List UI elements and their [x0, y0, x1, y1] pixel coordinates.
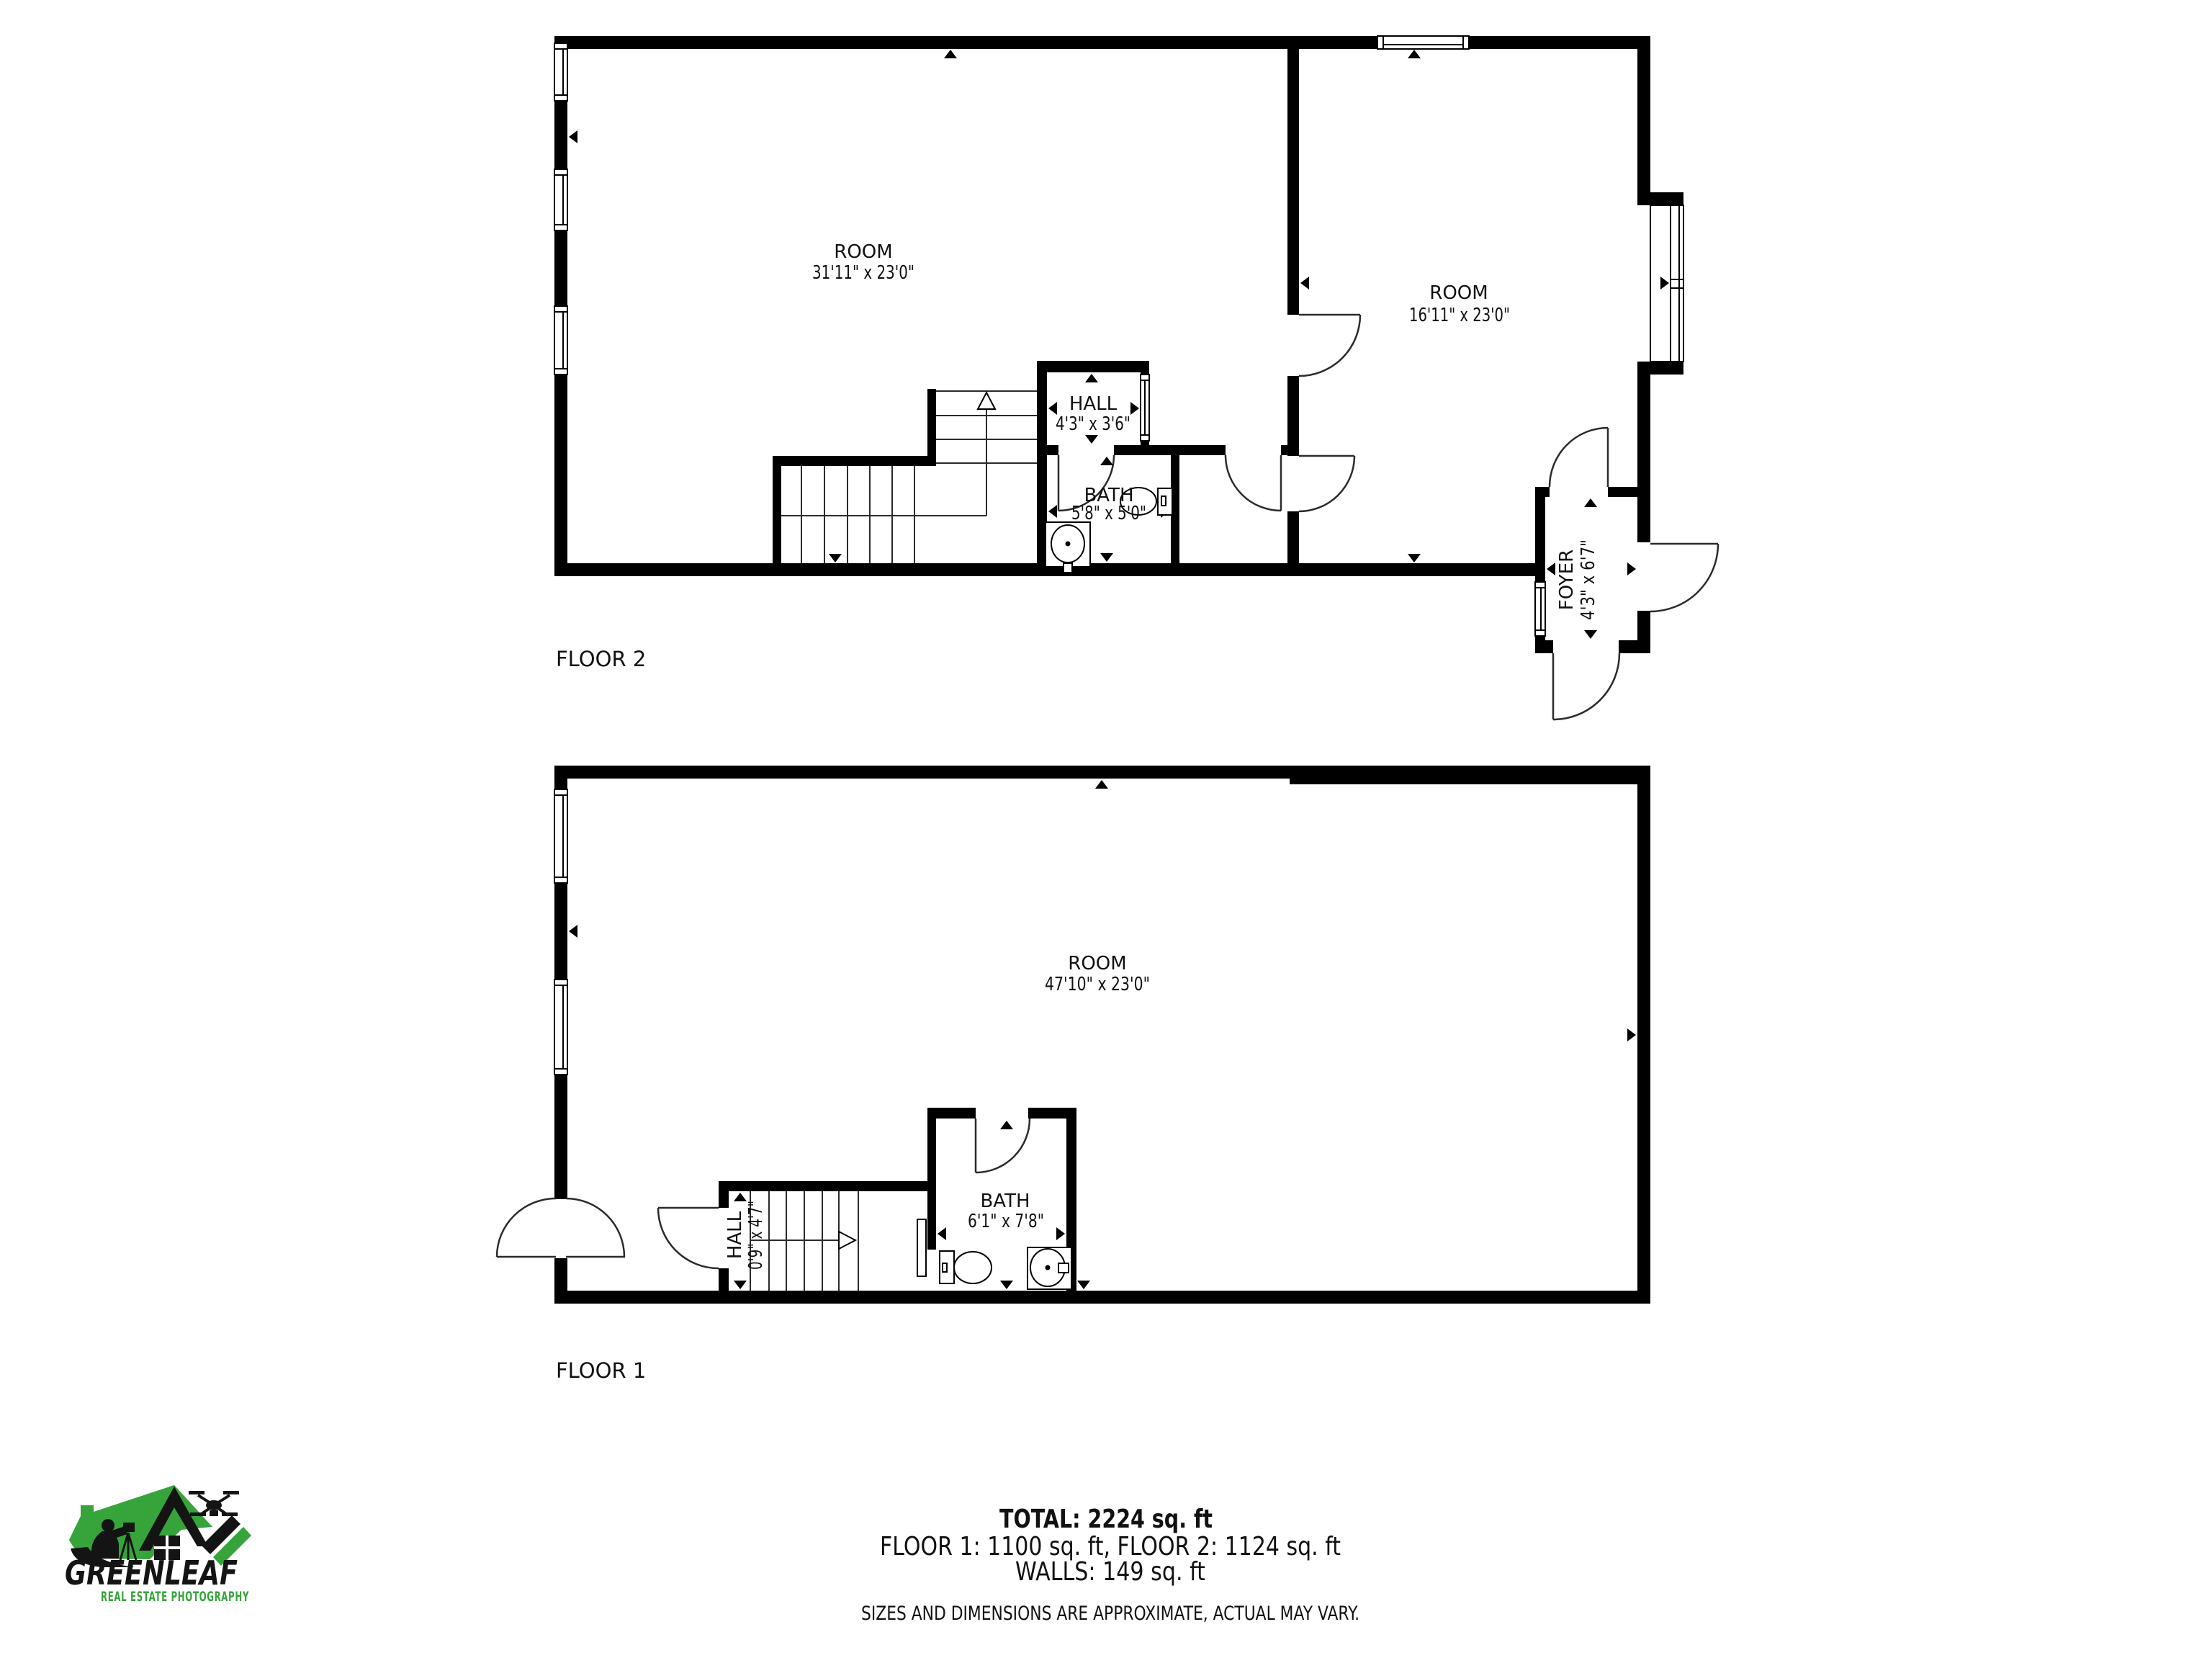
wall-segment	[1637, 192, 1683, 205]
dimension-arrow-icon	[1584, 630, 1597, 639]
dimension-arrow-icon	[1077, 1281, 1090, 1289]
floor2-room-left-dims: 31'11" x 23'0"	[812, 262, 914, 284]
door-swing-arc	[1650, 544, 1718, 611]
dimension-arrow-icon	[1627, 1028, 1636, 1041]
floor2-foyer-dims: 4'3" x 6'7"	[1578, 539, 1599, 620]
window-icon	[554, 789, 567, 883]
floor2-foyer-name: FOYER	[1556, 550, 1578, 610]
wall-segment	[1619, 640, 1650, 653]
dimension-arrow-icon	[734, 1281, 747, 1289]
window-icon	[554, 306, 567, 375]
floor1-hall-name: HALL	[724, 1211, 746, 1259]
floorplan-drawing: ROOM 31'11" x 23'0" ROOM 16'11" x 23'0" …	[0, 0, 2212, 1659]
wall-segment	[1637, 36, 1650, 192]
sink-faucet	[1064, 563, 1072, 573]
summary-walls: WALLS: 149 sq. ft	[1015, 1557, 1205, 1587]
wall-segment	[554, 1075, 567, 1199]
floor1-labels: ROOM 47'10" x 23'0" BATH 6'1" x 7'8" HAL…	[556, 953, 1150, 1383]
wall-segment	[554, 766, 1290, 779]
dimension-arrow-icon	[1100, 553, 1113, 562]
dimension-arrow-icon	[1000, 1121, 1013, 1129]
floor1-bath-dims: 6'1" x 7'8"	[968, 1211, 1044, 1232]
dimension-arrow-icon	[1627, 562, 1636, 575]
door-swing-arc	[658, 1208, 719, 1268]
wall-segment	[1535, 487, 1545, 582]
dimension-arrow-icon	[1085, 374, 1098, 382]
door-swing-arc	[1553, 653, 1619, 720]
wall-segment	[554, 1291, 1650, 1304]
floor1-room-name: ROOM	[1068, 953, 1126, 974]
door-swing-arc	[1299, 315, 1360, 376]
wall-segment	[1287, 376, 1299, 456]
floor2-label: FLOOR 2	[556, 647, 646, 671]
plan-geometry	[497, 36, 1718, 1304]
logo: GREENLEAF REAL ESTATE PHOTOGRAPHY	[65, 1485, 251, 1605]
sliding-door-icon	[917, 1219, 926, 1276]
dimension-arrow-icon	[1085, 435, 1098, 444]
wall-segment	[1114, 445, 1226, 455]
toilet-button	[1161, 496, 1166, 506]
summary-total: TOTAL: 2224 sq. ft	[999, 1505, 1213, 1534]
wall-segment	[773, 456, 936, 466]
dimension-arrow-icon	[1408, 554, 1421, 562]
sink-drain	[1046, 1265, 1051, 1270]
floor2-room-left-name: ROOM	[834, 241, 892, 263]
wall-segment	[1037, 361, 1149, 372]
logo-name: GREENLEAF	[65, 1554, 238, 1592]
door-swing-arc	[566, 1198, 624, 1257]
dimension-arrow-icon	[1048, 505, 1057, 518]
wall-segment	[554, 883, 567, 980]
window-icon	[554, 169, 567, 230]
floor1-room-dims: 47'10" x 23'0"	[1045, 974, 1150, 995]
summary-disclaimer: SIZES AND DIMENSIONS ARE APPROXIMATE, AC…	[861, 1603, 1359, 1625]
dimension-arrow-icon	[1056, 1227, 1065, 1240]
logo-tagline: REAL ESTATE PHOTOGRAPHY	[101, 1589, 249, 1605]
dimension-arrow-icon	[1100, 457, 1113, 465]
wall-segment	[773, 466, 781, 563]
dimension-arrow-icon	[1408, 50, 1421, 58]
dimension-arrow-icon	[944, 50, 957, 58]
floor2-hall-name: HALL	[1069, 393, 1118, 415]
wall-segment	[927, 389, 936, 466]
floorplan-page: ROOM 31'11" x 23'0" ROOM 16'11" x 23'0" …	[0, 0, 2212, 1659]
stair-up-arrow-icon	[978, 393, 995, 409]
toilet-button	[943, 1263, 947, 1272]
wall-segment	[1281, 445, 1287, 455]
wall-segment	[1637, 362, 1683, 375]
wall-segment	[1535, 640, 1553, 653]
dimension-arrow-icon	[938, 1227, 946, 1240]
wall-segment	[554, 766, 567, 789]
window-icon	[554, 43, 567, 101]
window-icon	[554, 980, 567, 1075]
dimension-arrow-icon	[569, 925, 577, 938]
dimension-arrow-icon	[1300, 277, 1309, 290]
floor2-room-right-dims: 16'11" x 23'0"	[1409, 305, 1510, 326]
wall-segment	[927, 1108, 936, 1250]
wall-segment	[1287, 49, 1299, 315]
dimension-arrow-icon	[1000, 1281, 1013, 1289]
floor2-bath-dims: 5'8" x 5'0"	[1071, 503, 1146, 524]
floor2-hall-dims: 4'3" x 3'6"	[1056, 413, 1130, 435]
dimension-arrow-icon	[569, 130, 577, 143]
dimension-arrow-icon	[829, 554, 842, 562]
toilet-bowl	[954, 1252, 992, 1283]
dimension-arrow-icon	[1547, 562, 1555, 575]
wall-segment	[554, 36, 1650, 49]
wall-segment	[1535, 487, 1550, 497]
floor1-label: FLOOR 1	[556, 1358, 646, 1383]
sink-drain	[1066, 542, 1071, 547]
stair-up-arrow-icon	[839, 1232, 855, 1249]
door-swing-arc	[497, 1198, 556, 1257]
window-icon	[1377, 36, 1469, 49]
wall-segment	[1637, 766, 1650, 1304]
floor2-labels: ROOM 31'11" x 23'0" ROOM 16'11" x 23'0" …	[556, 241, 1599, 671]
wall-segment	[1637, 375, 1650, 542]
floor1-bath-name: BATH	[980, 1191, 1030, 1212]
dimension-arrow-icon	[1584, 498, 1597, 507]
sink-faucet	[1058, 1263, 1069, 1273]
wall-segment	[1290, 766, 1650, 784]
wall-segment	[1287, 511, 1299, 563]
wall-segment	[1608, 487, 1637, 497]
door-swing-arc	[1226, 455, 1281, 511]
wall-segment	[927, 1108, 976, 1119]
wall-segment	[719, 1181, 936, 1191]
wall-segment	[1037, 445, 1058, 455]
dimension-arrow-icon	[1095, 780, 1108, 789]
dimension-arrow-icon	[734, 1193, 747, 1201]
wall-segment	[719, 1268, 729, 1291]
floor2-room-right-name: ROOM	[1429, 282, 1488, 304]
area-summary: TOTAL: 2224 sq. ft FLOOR 1: 1100 sq. ft,…	[861, 1505, 1359, 1625]
dimension-arrow-icon	[1130, 402, 1139, 415]
wall-segment	[719, 1181, 729, 1208]
door-swing-arc	[1550, 428, 1608, 487]
floor1-hall-dims: 0'9" x 4'7"	[745, 1201, 767, 1270]
door-swing-arc	[1299, 456, 1354, 511]
